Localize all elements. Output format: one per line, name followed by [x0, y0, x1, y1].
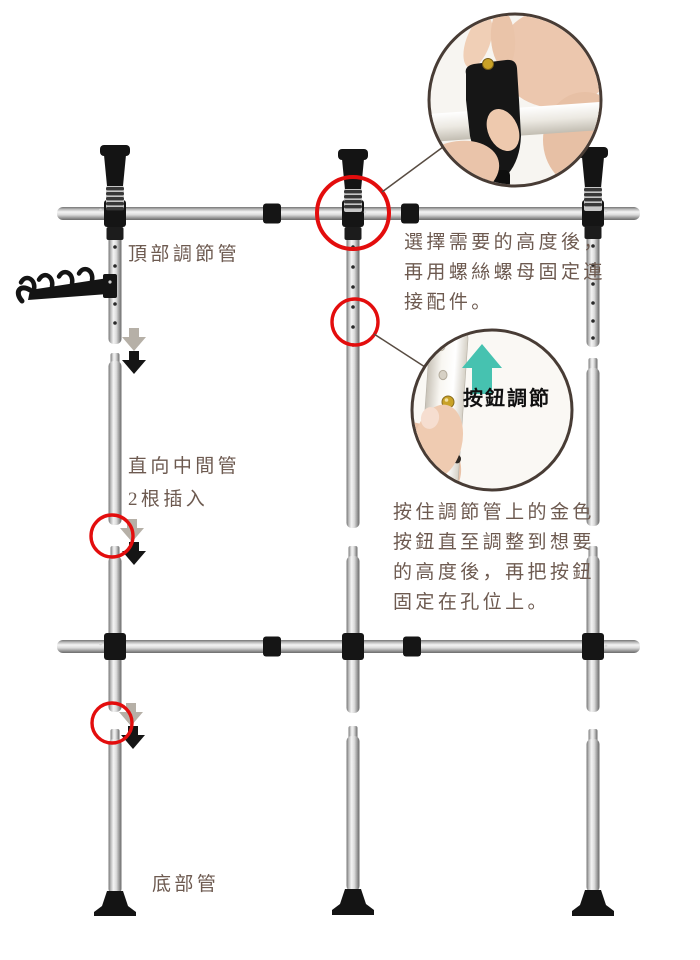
instruction-line: 按鈕直至調整到想要 [393, 528, 595, 558]
label-line: 直向中間管 [128, 450, 240, 483]
instruction-line: 按住調節管上的金色 [393, 498, 595, 528]
instruction-line: 接配件。 [404, 288, 606, 318]
bar-sleeve-joint [263, 637, 281, 657]
button-adjust-badge: 按鈕調節 [463, 382, 551, 411]
screw [483, 59, 494, 70]
instruction-screw-fix: 選擇需要的高度後， 再用螺絲螺母固定連 接配件。 [404, 228, 606, 318]
instruction-line: 選擇需要的高度後， [404, 228, 606, 258]
down-arrow-icon [122, 328, 146, 351]
label-vertical-middle-tube: 直向中間管 2根插入 [128, 450, 240, 516]
label-line: 2根插入 [128, 483, 240, 516]
instruction-line: 固定在孔位上。 [393, 588, 595, 618]
adjust-hole [439, 370, 447, 379]
foot-cap [572, 890, 614, 916]
foot-cap [94, 891, 136, 916]
bar-sleeve-joint [263, 204, 281, 224]
down-arrow-icon [122, 351, 146, 374]
inset-photo-button [351, 327, 572, 522]
pole-rack-diagram [0, 0, 700, 960]
hook-bracket [18, 269, 117, 301]
instruction-line: 的高度後，再把按鈕 [393, 558, 595, 588]
instruction-line: 再用螺絲螺母固定連 [404, 258, 606, 288]
left-pole [109, 196, 122, 894]
label-top-adjust-tube: 頂部調節管 [128, 240, 240, 270]
bar-sleeve-joint [403, 637, 421, 657]
bar-sleeve-joint [401, 204, 419, 224]
ceiling-cap-left [100, 145, 130, 210]
foot-cap [332, 889, 374, 915]
label-bottom-tube: 底部管 [152, 870, 219, 900]
instruction-diagram-page: 頂部調節管 選擇需要的高度後， 再用螺絲螺母固定連 接配件。 直向中間管 2根插… [0, 0, 700, 960]
instruction-button-adjust: 按住調節管上的金色 按鈕直至調整到想要 的高度後，再把按鈕 固定在孔位上。 [393, 498, 595, 618]
